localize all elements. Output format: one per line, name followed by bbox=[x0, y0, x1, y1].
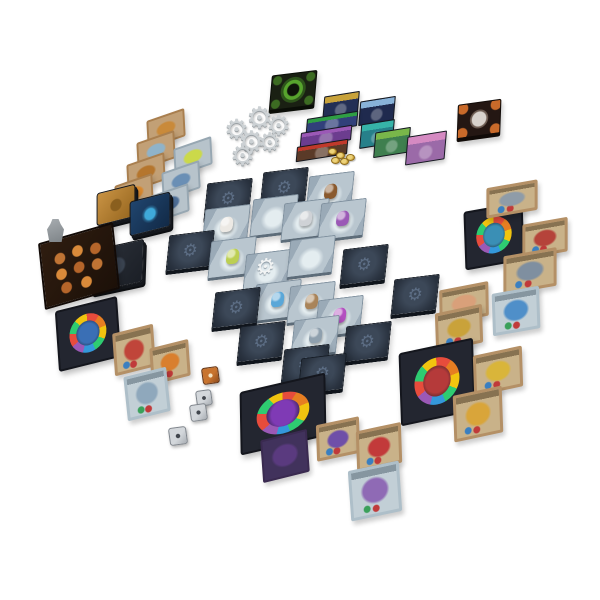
dungeon-tile-face-up bbox=[286, 235, 336, 280]
gear-room-token: ⚙ bbox=[254, 256, 276, 281]
item-card bbox=[453, 385, 504, 442]
silver-die bbox=[168, 426, 188, 446]
gear-emblem-icon: ⚙ bbox=[253, 332, 270, 351]
miniature-white bbox=[219, 216, 234, 233]
silver-die bbox=[189, 403, 208, 422]
spell-card-dragon bbox=[348, 460, 402, 521]
monster-card bbox=[316, 416, 360, 462]
gear-emblem-icon: ⚙ bbox=[407, 285, 424, 304]
dungeon-tile-face-down: ⚙ bbox=[236, 321, 286, 366]
miniature-slate bbox=[308, 327, 323, 344]
tabletop-scene: ⚙⚙⚙⚙⚙⚙ ⚙⚙⚙⚙⚙⚙⚙⚙⚙⚙⚙ bbox=[0, 0, 600, 600]
orange-die bbox=[201, 366, 220, 385]
player-board-blue bbox=[55, 296, 121, 372]
grey-miniature bbox=[47, 219, 64, 242]
miniature-purple bbox=[335, 210, 350, 227]
miniature-blue bbox=[270, 291, 285, 308]
spell-card-blue bbox=[492, 286, 541, 337]
gold-coin bbox=[346, 154, 355, 161]
dungeon-tile-face-down: ⚙ bbox=[342, 321, 392, 366]
miniature-green bbox=[225, 248, 240, 265]
miniature-silver bbox=[298, 210, 313, 227]
spell-card bbox=[123, 367, 170, 422]
gear-token-icon: ⚙ bbox=[230, 142, 255, 170]
gear-emblem-icon: ⚙ bbox=[182, 241, 199, 260]
dungeon-tile-face-down: ⚙ bbox=[339, 244, 389, 289]
gold-coin bbox=[331, 157, 340, 164]
boss-tile bbox=[457, 99, 502, 143]
gear-emblem-icon: ⚙ bbox=[356, 255, 373, 274]
entrance-tile bbox=[268, 70, 317, 114]
dungeon-tile-face-down: ⚙ bbox=[390, 274, 440, 319]
gear-emblem-icon: ⚙ bbox=[228, 298, 245, 317]
market-card bbox=[405, 130, 447, 165]
gear-emblem-icon: ⚙ bbox=[359, 332, 376, 351]
item-card bbox=[486, 179, 537, 218]
gear-token-icon: ⚙ bbox=[258, 130, 281, 156]
